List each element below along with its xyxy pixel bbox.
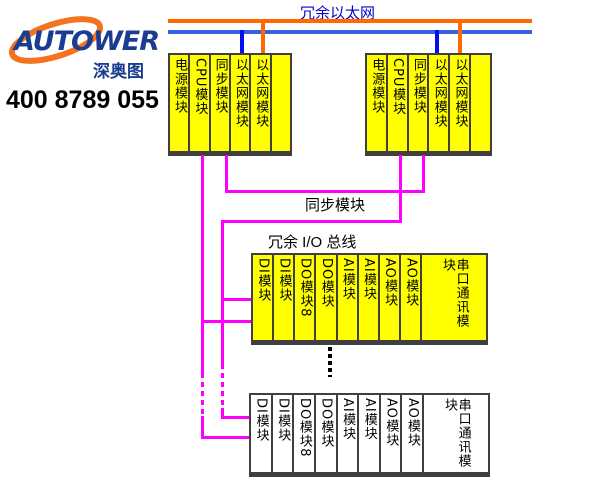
module-label: 电源模块 xyxy=(172,58,186,151)
rack-module: CPU模块 xyxy=(190,55,210,151)
module-label: CPU模块 xyxy=(390,58,404,151)
ethernet-line-b xyxy=(168,30,532,34)
module-label: 串口通讯模块 xyxy=(440,258,467,340)
ethernet-drop-b-left xyxy=(240,30,244,53)
vertical-ellipsis-icon xyxy=(328,347,332,377)
rack-module: AI模块 xyxy=(359,255,380,340)
module-label: AI模块 xyxy=(340,258,354,340)
rack-module: 串口通讯模块 xyxy=(422,255,486,340)
module-label: DI模块 xyxy=(256,258,270,340)
rack-module: DI模块 xyxy=(253,255,274,340)
controller-rack-left: 电源模块CPU模块同步模块以太网模块以太网模块 xyxy=(168,53,292,156)
io-bus-b-horizontal xyxy=(221,220,402,223)
module-label: 同步模块 xyxy=(411,58,425,151)
rack-module: AO模块 xyxy=(402,395,424,472)
rack-module: 以太网模块 xyxy=(429,55,450,151)
ethernet-drop-a-left xyxy=(261,19,265,53)
io-bus-b-drop xyxy=(399,155,402,223)
rack-module: DI模块 xyxy=(273,395,295,472)
module-label: DO模块8 xyxy=(298,258,312,340)
io-bus-b-vertical xyxy=(221,220,224,364)
rack-module: 以太网模块 xyxy=(251,55,271,151)
ethernet-line-a xyxy=(168,19,532,23)
module-label: DI模块 xyxy=(254,398,268,472)
rack-module: DI模块 xyxy=(274,255,295,340)
rack-module: 同步模块 xyxy=(409,55,430,151)
io-bus-label: 冗余 I/O 总线 xyxy=(268,231,356,252)
rack-module: DO模块 xyxy=(316,255,337,340)
sync-link-label: 同步模块 xyxy=(305,194,365,215)
module-label: AI模块 xyxy=(362,398,376,472)
rack-module: AO模块 xyxy=(381,395,403,472)
rack-module: AO模块 xyxy=(401,255,422,340)
module-label: CPU模块 xyxy=(193,58,207,151)
module-label: AI模块 xyxy=(361,258,375,340)
rack-module: AI模块 xyxy=(338,255,359,340)
phone-number: 400 8789 055 xyxy=(6,86,159,115)
rack-module xyxy=(471,55,490,151)
ethernet-drop-a-right xyxy=(458,19,462,53)
io-bus-b-stub-bottom-rack xyxy=(221,416,251,419)
io-rack-bottom: DI模块DI模块DO模块8DO模块AI模块AI模块AO模块AO模块串口通讯模块 xyxy=(249,393,490,477)
rack-module: DO模块8 xyxy=(294,395,316,472)
module-label: DI模块 xyxy=(277,258,291,340)
brand-logo-text: AUTOWER xyxy=(14,26,159,57)
rack-module: 电源模块 xyxy=(170,55,190,151)
module-label: 电源模块 xyxy=(370,58,384,151)
module-label: AO模块 xyxy=(405,398,419,472)
rack-module: DO模块8 xyxy=(295,255,316,340)
rack-module: 以太网模块 xyxy=(450,55,471,151)
module-label: DO模块8 xyxy=(297,398,311,472)
module-label: 同步模块 xyxy=(213,58,227,151)
module-label: AO模块 xyxy=(404,258,418,340)
io-bus-a-dashed xyxy=(201,373,204,416)
brand-cn-name: 深奥图 xyxy=(93,57,144,82)
module-label: 以太网模块 xyxy=(432,58,446,151)
rack-module: 同步模块 xyxy=(211,55,231,151)
module-label: DI模块 xyxy=(276,398,290,472)
rack-module xyxy=(272,55,290,151)
rack-module: DI模块 xyxy=(251,395,273,472)
module-label: 以太网模块 xyxy=(254,58,268,151)
io-bus-b-dashed xyxy=(221,364,224,408)
rack-module: AI模块 xyxy=(338,395,360,472)
rack-module: DO模块 xyxy=(316,395,338,472)
io-bus-a-stub-top-rack xyxy=(201,320,253,323)
module-label: AO模块 xyxy=(382,258,396,340)
rack-module: 以太网模块 xyxy=(231,55,251,151)
sync-drop-left xyxy=(225,155,228,192)
rack-module: AO模块 xyxy=(380,255,401,340)
io-bus-b-stub-top-rack xyxy=(221,298,253,301)
io-bus-a-vertical xyxy=(201,155,204,373)
rack-module: AI模块 xyxy=(359,395,381,472)
module-label: 以太网模块 xyxy=(233,58,247,151)
module-label: DO模块 xyxy=(319,258,333,340)
controller-rack-right: 电源模块CPU模块同步模块以太网模块以太网模块 xyxy=(365,53,492,156)
module-label: AO模块 xyxy=(384,398,398,472)
module-label: 以太网模块 xyxy=(453,58,467,151)
rack-module: 串口通讯模块 xyxy=(424,395,488,472)
ethernet-drop-b-right xyxy=(435,30,439,53)
io-rack-top: DI模块DI模块DO模块8DO模块AI模块AI模块AO模块AO模块串口通讯模块 xyxy=(251,253,488,345)
rack-module: CPU模块 xyxy=(388,55,409,151)
module-label: 串口通讯模块 xyxy=(442,398,469,472)
io-bus-a-stub-bottom-rack xyxy=(201,436,250,439)
sync-link-line xyxy=(225,190,425,193)
module-label: AI模块 xyxy=(340,398,354,472)
module-label: DO模块 xyxy=(319,398,333,472)
rack-module: 电源模块 xyxy=(367,55,388,151)
sync-drop-right xyxy=(422,155,425,192)
diagram-canvas: AUTOWER 深奥图 400 8789 055 冗余以太网 电源模块CPU模块… xyxy=(0,0,600,480)
